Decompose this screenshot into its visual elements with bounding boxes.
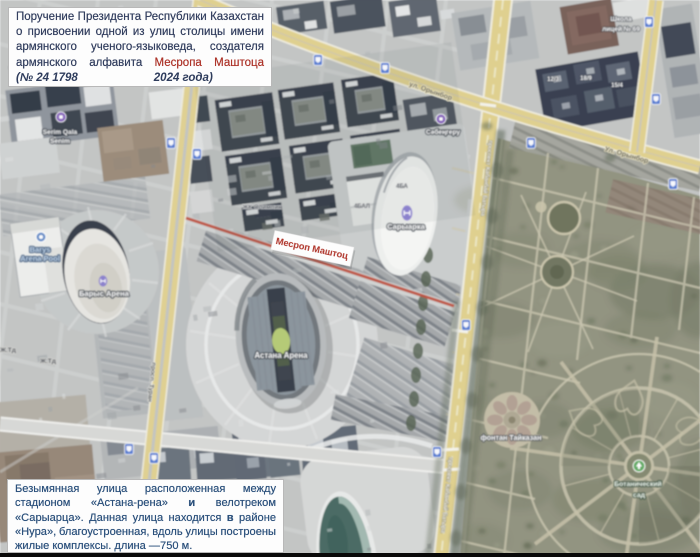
svg-text:Ж.Тд: Ж.Тд [39, 358, 56, 365]
svg-text:фонтан Тайказан: фонтан Тайказан [481, 433, 542, 442]
svg-text:Ботанический: Ботанический [614, 480, 661, 488]
svg-text:Arena Pool: Arena Pool [20, 254, 60, 263]
svg-text:4БАЛ: 4БАЛ [354, 204, 370, 210]
svg-text:Школа: Школа [610, 16, 632, 23]
svg-text:4БА: 4БА [396, 184, 408, 190]
svg-text:Senim: Senim [50, 138, 70, 145]
svg-text:Serim Qala: Serim Qala [43, 129, 78, 136]
svg-text:Ж.Тд: Ж.Тд [0, 347, 16, 354]
svg-text:ЖК Олимпик: ЖК Олимпик [242, 204, 283, 211]
svg-text:Сарыарка: Сарыарка [387, 222, 426, 231]
svg-text:Астана Арена: Астана Арена [254, 351, 308, 360]
svg-text:15/4: 15/4 [611, 83, 623, 89]
svg-text:Сәбеңгеру: Сәбеңгеру [426, 128, 461, 136]
svg-text:18/9: 18/9 [580, 76, 592, 82]
svg-text:12/3: 12/3 [547, 77, 559, 83]
svg-text:лицей № 69: лицей № 69 [602, 25, 640, 33]
svg-text:сад: сад [633, 492, 646, 499]
svg-text:Барыс Арена: Барыс Арена [79, 289, 130, 298]
svg-text:Barys: Barys [30, 245, 51, 254]
